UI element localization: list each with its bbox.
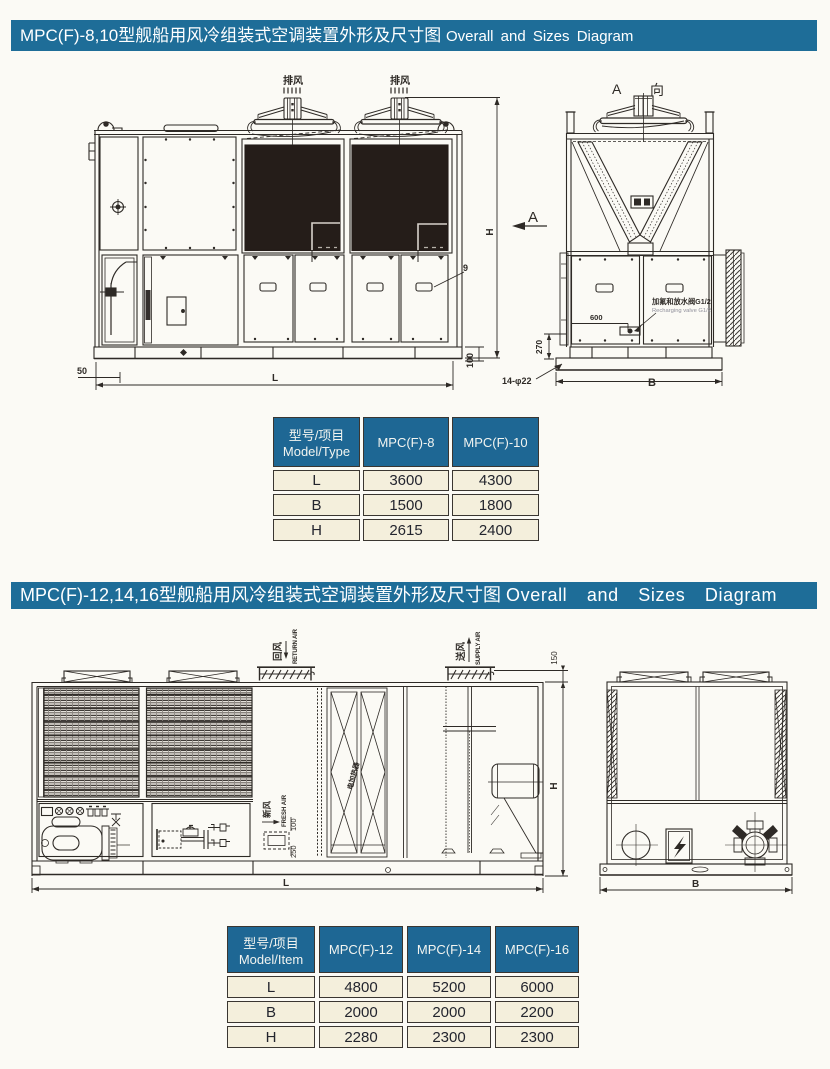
svg-text:250: 250 <box>289 845 298 858</box>
svg-text:FRESH AIR: FRESH AIR <box>282 794 288 827</box>
svg-text:回风: 回风 <box>273 642 284 662</box>
svg-text:100: 100 <box>465 353 475 368</box>
svg-text:B: B <box>648 377 656 389</box>
svg-text:排风: 排风 <box>283 74 303 87</box>
svg-text:RETURN AIR: RETURN AIR <box>293 628 299 664</box>
svg-text:100: 100 <box>289 818 298 831</box>
svg-text:150: 150 <box>550 651 559 665</box>
svg-text:新风: 新风 <box>262 800 272 818</box>
svg-text:排风: 排风 <box>390 74 410 87</box>
svg-text:Recharging valve G1/2: Recharging valve G1/2 <box>652 308 711 314</box>
svg-text:加氟和放水阀G1/2: 加氟和放水阀G1/2 <box>651 297 711 306</box>
svg-text:H: H <box>485 228 496 235</box>
svg-text:14-φ22: 14-φ22 <box>502 376 531 386</box>
svg-text:SUPPLY AIR: SUPPLY AIR <box>476 631 482 665</box>
svg-text:A: A <box>612 81 622 97</box>
svg-text:L: L <box>283 878 289 889</box>
svg-text:50: 50 <box>77 366 87 376</box>
svg-text:L: L <box>272 373 278 384</box>
svg-text:电加热器: 电加热器 <box>345 760 361 790</box>
svg-text:270: 270 <box>534 340 544 354</box>
svg-text:9: 9 <box>463 263 468 273</box>
svg-text:A: A <box>528 209 538 226</box>
svg-text:H: H <box>549 782 560 789</box>
svg-text:送风: 送风 <box>455 642 467 663</box>
svg-text:600: 600 <box>590 313 603 322</box>
svg-text:B: B <box>692 879 699 890</box>
